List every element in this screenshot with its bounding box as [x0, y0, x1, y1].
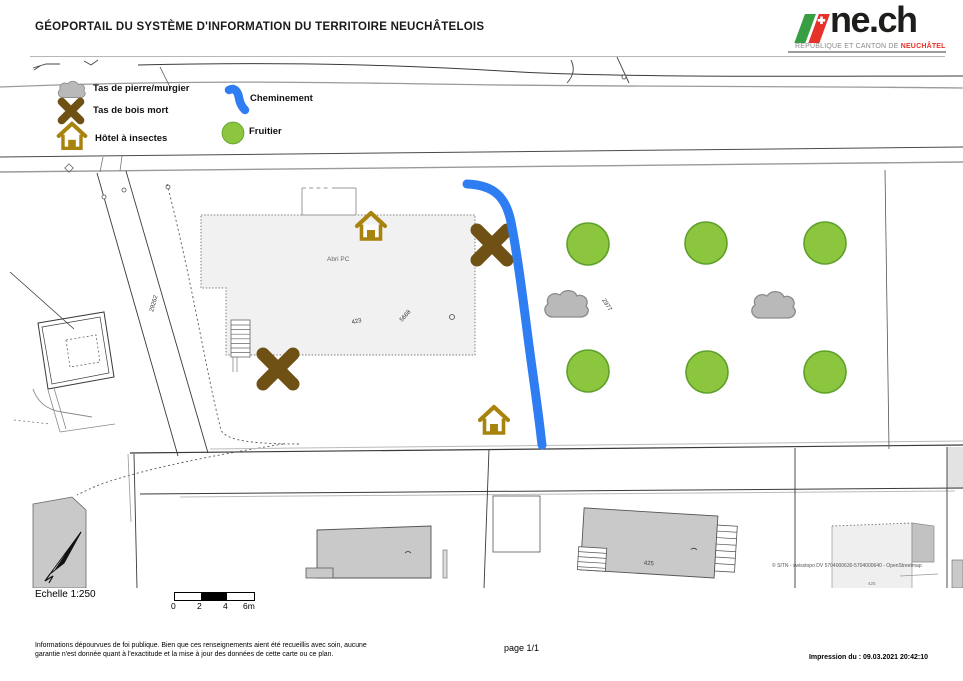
- scale-label: Echelle 1:250: [35, 589, 96, 600]
- disclaimer-text: Informations dépourvues de foi publique.…: [35, 641, 367, 659]
- fruit-tree-icon: [804, 351, 846, 393]
- road-shoulder: [947, 447, 963, 489]
- dead-wood-icon: [263, 354, 293, 384]
- buildings-south: 425 425: [306, 508, 963, 588]
- path-icon: [222, 84, 252, 116]
- scale-bar: [174, 592, 255, 601]
- ne-ch-logo: ne.ch RÉPUBLIQUE ET CANTON DE NEUCHÂTEL: [788, 5, 948, 55]
- legend-label: Tas de pierre/murgier: [93, 83, 189, 94]
- building-425-label: 425: [644, 561, 655, 568]
- page-number: page 1/1: [504, 643, 539, 653]
- circle-icon: [220, 120, 246, 146]
- fruit-tree-icon: [685, 222, 727, 264]
- brand-name: ne.ch: [830, 0, 917, 41]
- legend-label: Hôtel à insectes: [95, 133, 167, 144]
- building-southeast: 425: [832, 523, 963, 588]
- dead-wood-icon: [477, 230, 507, 260]
- scale-tick: 2: [197, 601, 202, 611]
- insect-hotel-icon: [480, 407, 508, 433]
- legend-label: Fruitier: [249, 126, 282, 137]
- road-lines-middle: [0, 147, 963, 172]
- scale-tick: 0: [171, 601, 176, 611]
- abri-pc-label: Abri PC: [327, 256, 350, 263]
- legend-label: Tas de bois mort: [93, 105, 168, 116]
- legend-item-insect-hotel: Hôtel à insectes: [56, 120, 88, 157]
- abri-pc-building: [201, 188, 475, 372]
- survey-mark-icon: [84, 60, 98, 65]
- logo-tagline: RÉPUBLIQUE ET CANTON DE NEUCHÂTEL: [795, 43, 946, 50]
- parcel-southwest: [10, 272, 115, 432]
- building-425: 425: [577, 508, 737, 579]
- parcel-2977-label: 2977: [600, 298, 613, 313]
- cheminement-path: [467, 184, 542, 445]
- fruit-tree-icon: [686, 351, 728, 393]
- print-page: GÉOPORTAIL DU SYSTÈME D'INFORMATION DU T…: [0, 0, 963, 681]
- legend-label: Cheminement: [250, 93, 313, 104]
- annex-rectangle: [302, 188, 356, 215]
- stone-pile-icon: [545, 291, 588, 317]
- disclaimer-line: garantie n'est donnée quant à l'exactitu…: [35, 650, 367, 659]
- logo-divider: [788, 51, 946, 53]
- tagline-canton: NEUCHÂTEL: [901, 43, 946, 50]
- page-title: GÉOPORTAIL DU SYSTÈME D'INFORMATION DU T…: [35, 21, 484, 33]
- house-icon: [56, 120, 88, 152]
- disclaimer-line: Informations dépourvues de foi publique.…: [35, 641, 367, 650]
- fruit-tree-icon: [804, 222, 846, 264]
- legend-item-fruitier: Fruitier: [220, 120, 246, 151]
- building-footprint: [33, 497, 86, 588]
- tagline-prefix: RÉPUBLIQUE ET CANTON DE: [795, 43, 901, 50]
- legend-item-cheminement: Cheminement: [222, 84, 252, 121]
- fruit-tree-icon: [567, 350, 609, 392]
- stone-pile-icon: [752, 292, 795, 318]
- print-date: Impression du : 09.03.2021 20:42:10: [809, 654, 928, 661]
- survey-mark-icon: [33, 64, 60, 70]
- map-copyright: © SITN - swisstopo DV 5704000630-5704000…: [772, 562, 922, 569]
- building-small-label: 425: [868, 581, 876, 586]
- scale-tick: 4: [223, 601, 228, 611]
- scale-tick: 6m: [243, 601, 255, 611]
- fruit-tree-icon: [567, 223, 609, 265]
- parcel-29262-label: 29262: [149, 294, 160, 312]
